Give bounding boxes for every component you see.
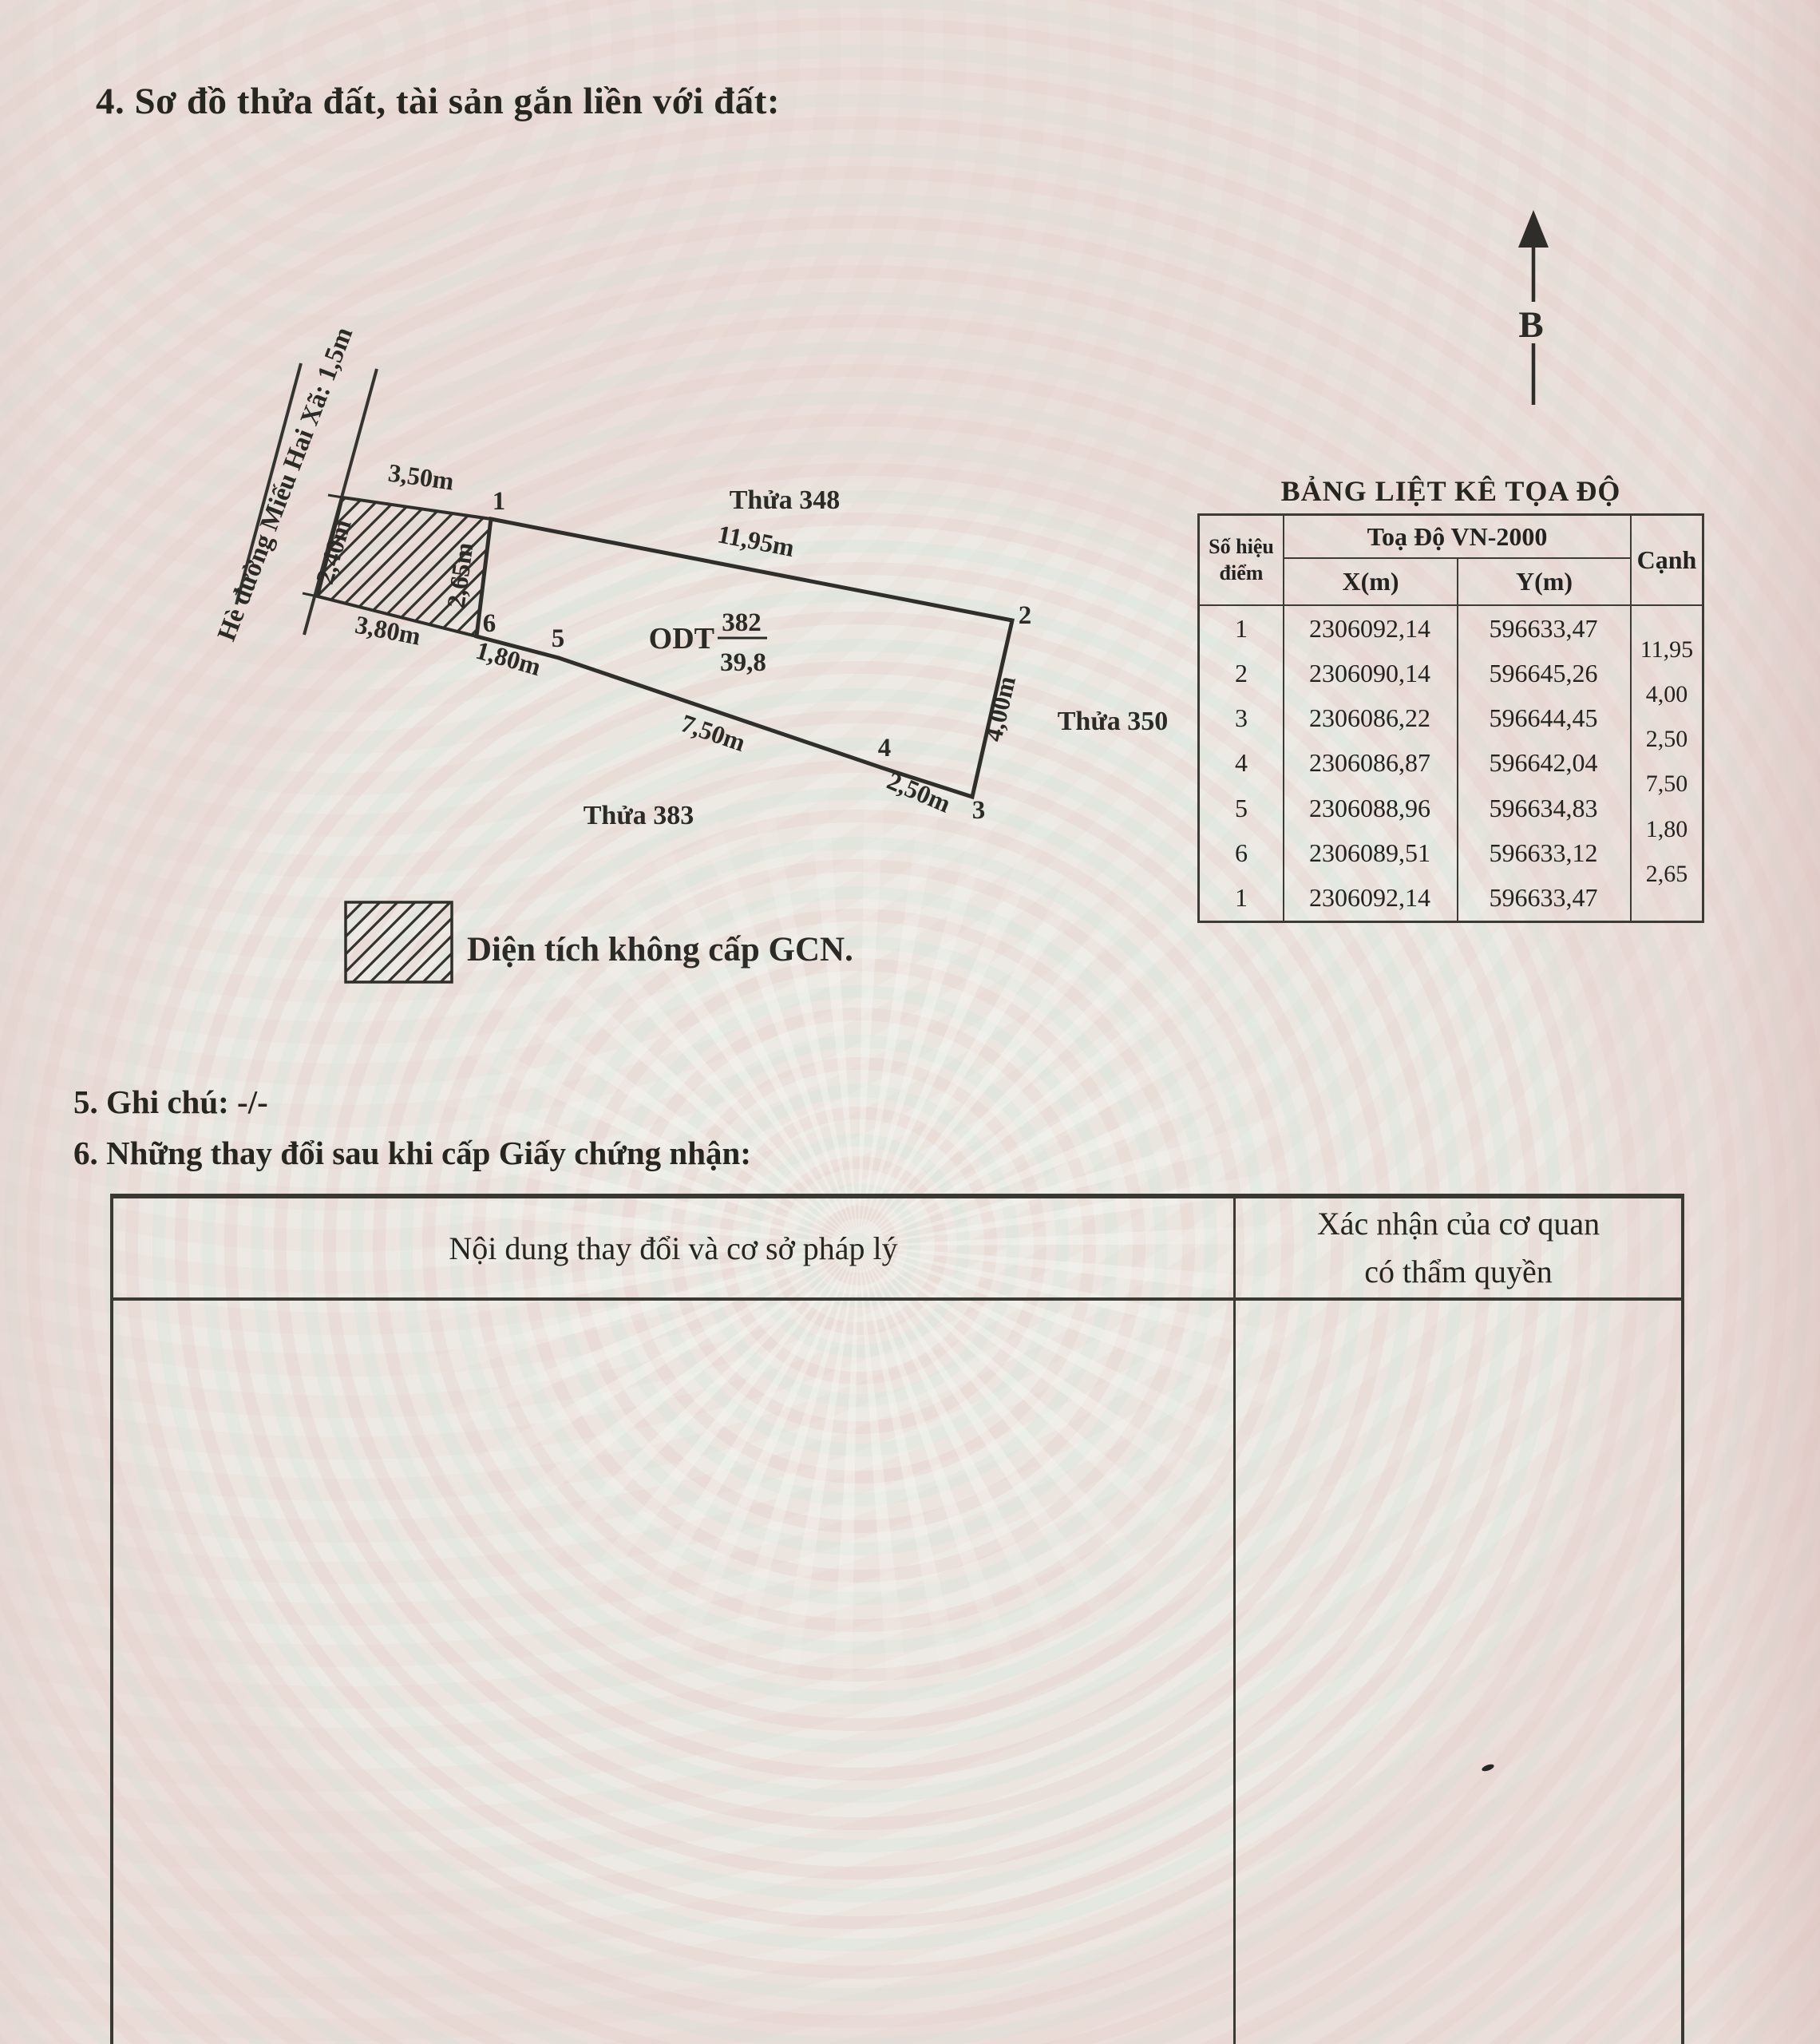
edge-length: 4,00: [1632, 680, 1702, 709]
edge-length: 2,65: [1632, 860, 1702, 889]
x-value: 2306090,14: [1283, 659, 1457, 688]
x-value: 2306088,96: [1283, 794, 1457, 823]
point-no: 6: [1200, 838, 1283, 868]
coord-row: 62306089,51596633,12: [1200, 830, 1702, 875]
y-value: 596645,26: [1457, 659, 1630, 688]
neighbor-parcel-top: Thửa 348: [730, 485, 841, 515]
coord-row: 12306092,14596633,47: [1200, 876, 1702, 921]
x-value: 2306092,14: [1283, 614, 1457, 644]
excluded-area-polygon: [318, 497, 491, 636]
coord-header-y: Y(m): [1458, 559, 1630, 604]
coord-header-group: Toạ Độ VN-2000: [1284, 516, 1630, 557]
dim-hatch-left: 2,40m: [310, 516, 357, 588]
dim-hatch-right: 2,65m: [441, 541, 479, 610]
point-no: 1: [1200, 614, 1283, 644]
coord-row: 42306086,87596642,04: [1200, 741, 1702, 786]
section5-title: 5. Ghi chú: -/-: [73, 1083, 268, 1121]
vertex-6: 6: [483, 609, 497, 638]
x-value: 2306089,51: [1283, 838, 1457, 868]
parcel-number: 382: [722, 608, 762, 637]
edge-length: 7,50: [1632, 770, 1702, 798]
y-value: 596633,12: [1457, 838, 1630, 868]
coordinate-table: Số hiệu điểm Toạ Độ VN-2000 X(m) Y(m) Cạ…: [1197, 513, 1704, 923]
changes-header-confirm-line2: có thẩm quyền: [1364, 1248, 1553, 1296]
point-no: 1: [1200, 883, 1283, 913]
parcel-code-fraction: ODT 382 39,8: [649, 608, 767, 677]
y-value: 596633,47: [1457, 883, 1630, 913]
coord-table-title: BẢNG LIỆT KÊ TỌA ĐỘ: [1197, 474, 1704, 508]
x-value: 2306086,87: [1283, 748, 1457, 778]
point-no: 2: [1200, 659, 1283, 688]
coord-header-point: Số hiệu điểm: [1200, 516, 1283, 604]
coord-row: 32306086,22596644,45: [1200, 696, 1702, 741]
certificate-page: 4. Sơ đồ thửa đất, tài sản gắn liền với …: [0, 0, 1820, 2044]
coord-header-x: X(m): [1284, 559, 1457, 604]
changes-header-content: Nội dung thay đổi và cơ sở pháp lý: [113, 1198, 1233, 1297]
y-value: 596644,45: [1457, 703, 1630, 733]
corner-tick-bottom: [303, 593, 318, 596]
y-value: 596642,04: [1457, 748, 1630, 778]
y-value: 596633,47: [1457, 614, 1630, 644]
dim-hatch-bottom: 3,80m: [353, 610, 423, 651]
dim-hatch-top: 3,50m: [386, 458, 456, 496]
road-left-line: [236, 363, 301, 604]
coord-rows: 12306092,14596633,47 22306090,14596645,2…: [1200, 606, 1702, 921]
x-value: 2306086,22: [1283, 703, 1457, 733]
north-arrow: B: [1518, 210, 1549, 405]
edge-length: 2,50: [1632, 725, 1702, 754]
road-right-line: [304, 369, 377, 635]
y-value: 596634,83: [1457, 794, 1630, 823]
road-label: Hè đường Miếu Hai Xã: 1,5m: [212, 323, 358, 645]
vertex-5: 5: [552, 624, 565, 653]
section4-title: 4. Sơ đồ thửa đất, tài sản gắn liền với …: [96, 80, 780, 123]
dim-edge-5-6: 1,80m: [473, 636, 544, 681]
land-use-code: ODT: [649, 622, 714, 656]
vertex-2: 2: [1019, 601, 1032, 630]
x-value: 2306092,14: [1283, 883, 1457, 913]
dim-edge-1-2: 11,95m: [715, 519, 797, 562]
coord-row: 12306092,14596633,47: [1200, 606, 1702, 651]
road: Hè đường Miếu Hai Xã: 1,5m: [212, 323, 377, 645]
changes-table-header-line: [113, 1297, 1681, 1301]
corner-tick-top: [328, 495, 342, 497]
changes-header-confirm: Xác nhận của cơ quan có thẩm quyền: [1236, 1198, 1681, 1297]
vertex-1: 1: [493, 487, 506, 516]
edge-length: 1,80: [1632, 815, 1702, 844]
north-arrow-head: [1518, 210, 1549, 248]
coord-row: 52306088,96596634,83: [1200, 786, 1702, 830]
point-no: 4: [1200, 748, 1283, 778]
parcel-area: 39,8: [720, 648, 766, 677]
coord-row: 22306090,14596645,26: [1200, 651, 1702, 695]
point-no: 5: [1200, 794, 1283, 823]
section6-title: 6. Những thay đổi sau khi cấp Giấy chứng…: [73, 1134, 751, 1172]
point-no: 3: [1200, 703, 1283, 733]
edge-length: 11,95: [1632, 636, 1702, 664]
changes-table: Nội dung thay đổi và cơ sở pháp lý Xác n…: [110, 1194, 1684, 2044]
changes-table-divider: [1233, 1198, 1236, 2044]
coord-header-edge: Cạnh: [1632, 516, 1702, 604]
changes-header-confirm-line1: Xác nhận của cơ quan: [1317, 1200, 1600, 1248]
north-label: B: [1518, 304, 1543, 346]
